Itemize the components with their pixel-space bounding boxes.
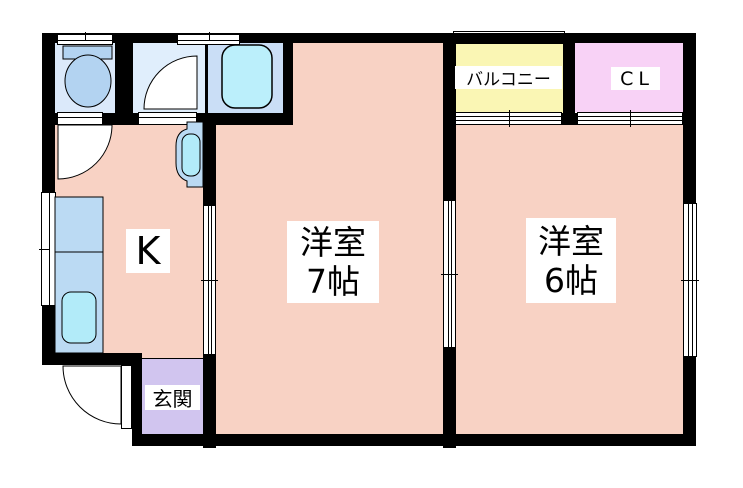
wall-top	[42, 33, 696, 43]
entrance-label: 玄関	[145, 385, 200, 410]
window-balcony	[455, 112, 562, 125]
balcony-label: バルコニー	[455, 66, 562, 89]
room-bathroom	[208, 43, 283, 113]
room-western7-notch	[293, 43, 443, 125]
western-room6-name: 洋室	[538, 222, 604, 261]
floor-plan: K 洋室 7帖 洋室 6帖 バルコニー CL 玄関	[0, 0, 743, 488]
wall-washroom-bath	[205, 43, 208, 113]
window-closet	[577, 112, 683, 125]
window-bath-top	[177, 34, 240, 45]
western-room6-size: 6帖	[538, 261, 604, 300]
kitchen-label: K	[126, 229, 170, 273]
window-west6-right	[683, 203, 697, 357]
wall-balcony-closet	[563, 33, 575, 125]
western-room7-name: 洋室	[300, 223, 366, 262]
window-kitchen-left	[41, 192, 56, 306]
door-arc-entrance	[63, 366, 121, 424]
entry-door-leaf	[121, 365, 132, 429]
room-washroom	[133, 43, 205, 113]
wall-above-entry	[42, 353, 142, 365]
door-toilet	[57, 112, 103, 125]
window-toilet-top	[57, 34, 113, 45]
western-room7-label: 洋室 7帖	[287, 221, 379, 303]
closet-label: CL	[611, 67, 660, 90]
western-room6-label: 洋室 6帖	[526, 218, 616, 303]
sliding-door-west7-west6	[443, 200, 456, 348]
wall-entry-entrance	[132, 358, 142, 446]
sliding-door-kitchen-west7	[203, 205, 216, 355]
door-washroom	[138, 112, 197, 125]
western-room7-size: 7帖	[300, 262, 366, 301]
wall-bottom	[132, 434, 696, 446]
room-toilet	[55, 43, 115, 113]
